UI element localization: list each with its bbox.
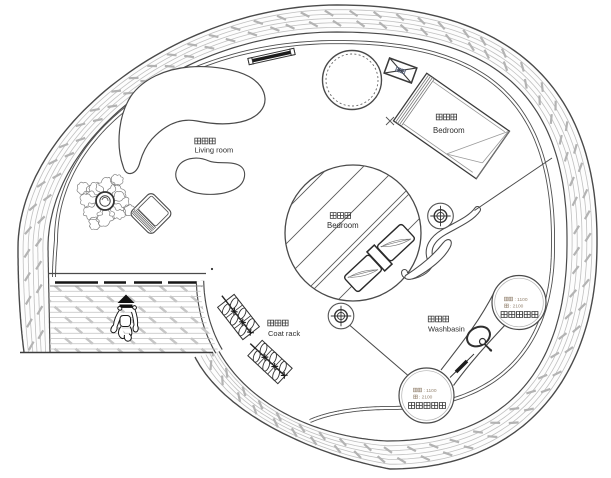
- svg-text:: 1100: : 1100: [515, 297, 528, 303]
- svg-text:Bedroom: Bedroom: [327, 221, 359, 230]
- svg-text:Washbasin: Washbasin: [428, 325, 465, 334]
- svg-text:Coat rack: Coat rack: [268, 329, 300, 338]
- svg-text:: 2100: : 2100: [419, 395, 433, 401]
- svg-text:: 1100: : 1100: [424, 388, 437, 394]
- svg-text:: 2100: : 2100: [510, 304, 524, 310]
- svg-text:Bedroom: Bedroom: [433, 126, 465, 135]
- svg-text:Living room: Living room: [195, 146, 234, 155]
